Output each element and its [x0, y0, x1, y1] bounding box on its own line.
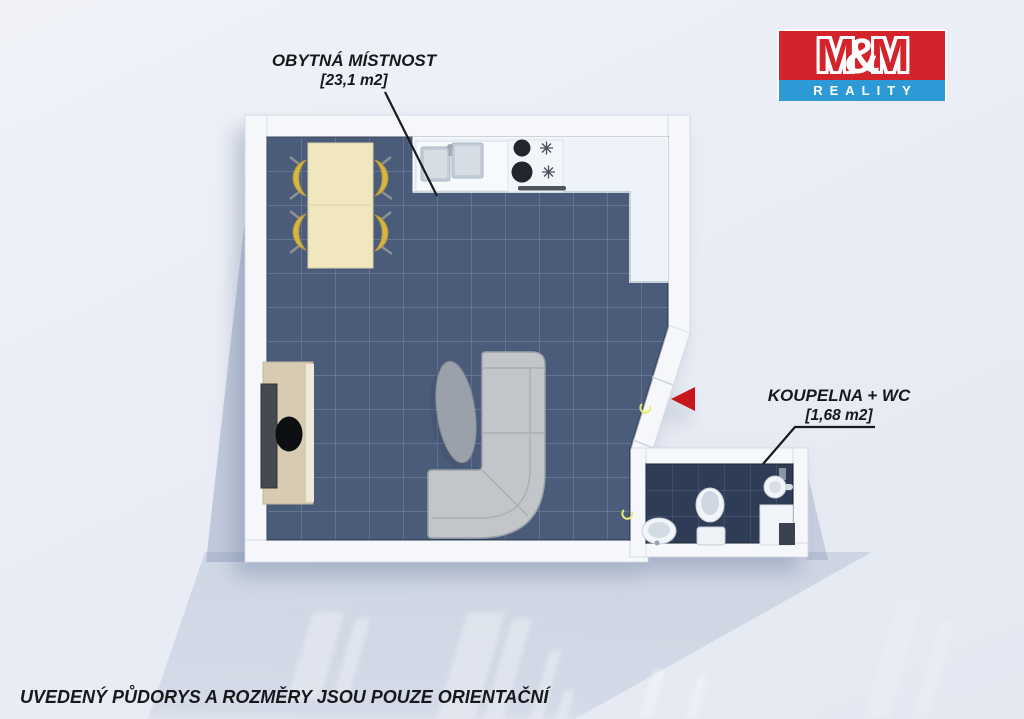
logo-subtitle: REALITY	[779, 80, 945, 101]
burner	[514, 140, 531, 157]
bathroom-wall-top	[630, 448, 808, 464]
living-room-area: [23,1 m2]	[272, 71, 436, 90]
shower-step	[760, 505, 795, 545]
bathroom-wall-left	[630, 448, 646, 557]
floorplan-page: OBYTNÁ MÍSTNOST [23,1 m2] KOUPELNA + WC …	[0, 0, 1024, 719]
bathroom-label: KOUPELNA + WC [1,68 m2]	[768, 385, 910, 425]
disclaimer-text: UVEDENÝ PŮDORYS A ROZMĚRY JSOU POUZE ORI…	[20, 687, 548, 708]
bathroom-wall-right	[793, 448, 808, 557]
speaker	[276, 417, 303, 452]
living-room-label: OBYTNÁ MÍSTNOST [23,1 m2]	[272, 50, 436, 90]
oven-handle	[518, 186, 566, 191]
floorplan-rendering	[0, 0, 1024, 719]
entrance-arrow-icon	[671, 387, 695, 411]
bathroom-area: [1,68 m2]	[768, 406, 910, 425]
bathroom-name: KOUPELNA + WC	[768, 385, 910, 406]
wall-top	[245, 115, 690, 137]
stove	[508, 140, 566, 193]
apartment-plan	[245, 115, 808, 562]
living-room-name: OBYTNÁ MÍSTNOST	[272, 50, 436, 71]
wall-bottom	[245, 540, 648, 562]
toilet	[696, 488, 725, 545]
logo-top: M & M	[779, 31, 945, 80]
wall-right	[668, 115, 690, 335]
mm-reality-logo: M & M REALITY	[777, 29, 947, 101]
burner	[512, 162, 533, 183]
dining-table	[308, 143, 373, 268]
logo-ampersand: &	[844, 32, 880, 80]
tv-screen	[261, 384, 277, 488]
tv-cabinet	[261, 362, 314, 504]
